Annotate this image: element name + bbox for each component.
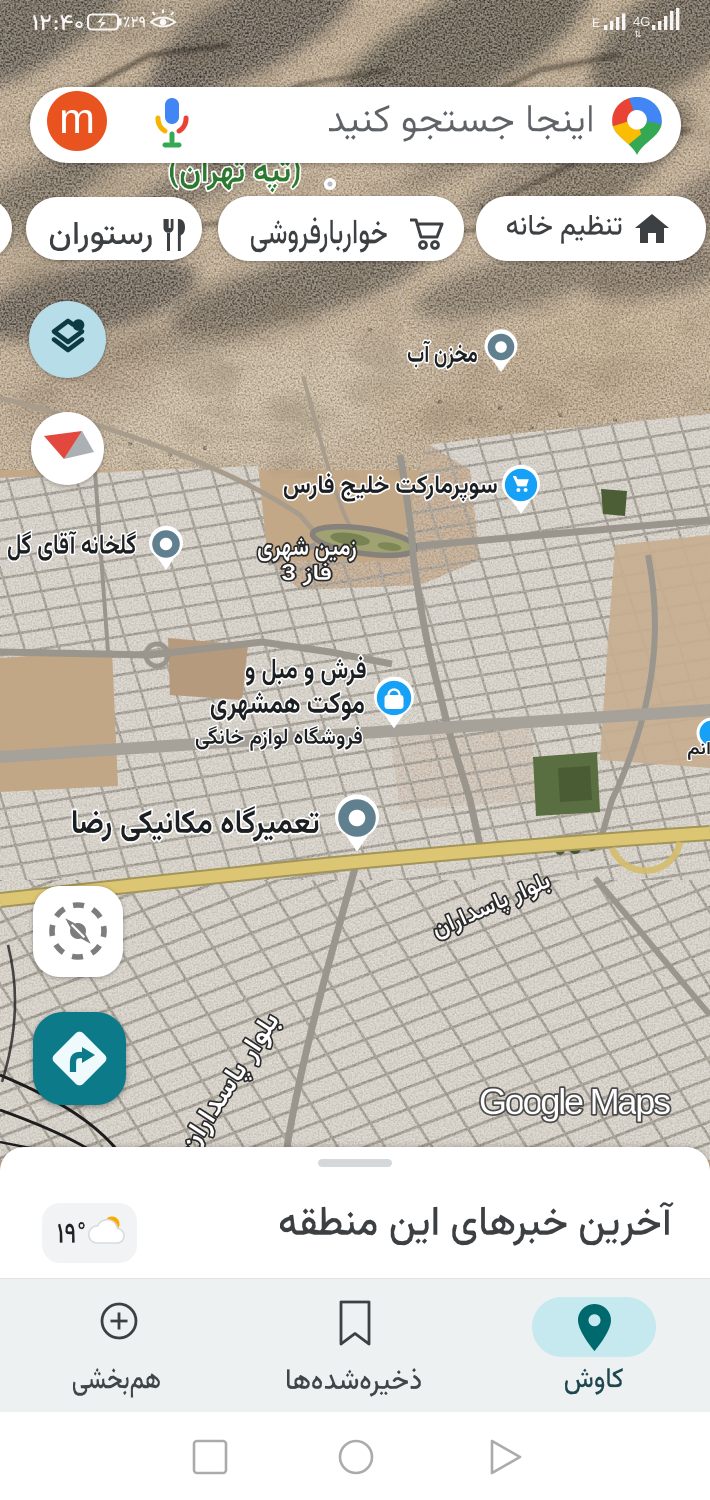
- svg-text:Google Maps: Google Maps: [479, 1081, 671, 1122]
- svg-text:4G: 4G: [633, 14, 650, 29]
- svg-text:E: E: [592, 16, 600, 30]
- svg-text:⇅: ⇅: [634, 29, 642, 39]
